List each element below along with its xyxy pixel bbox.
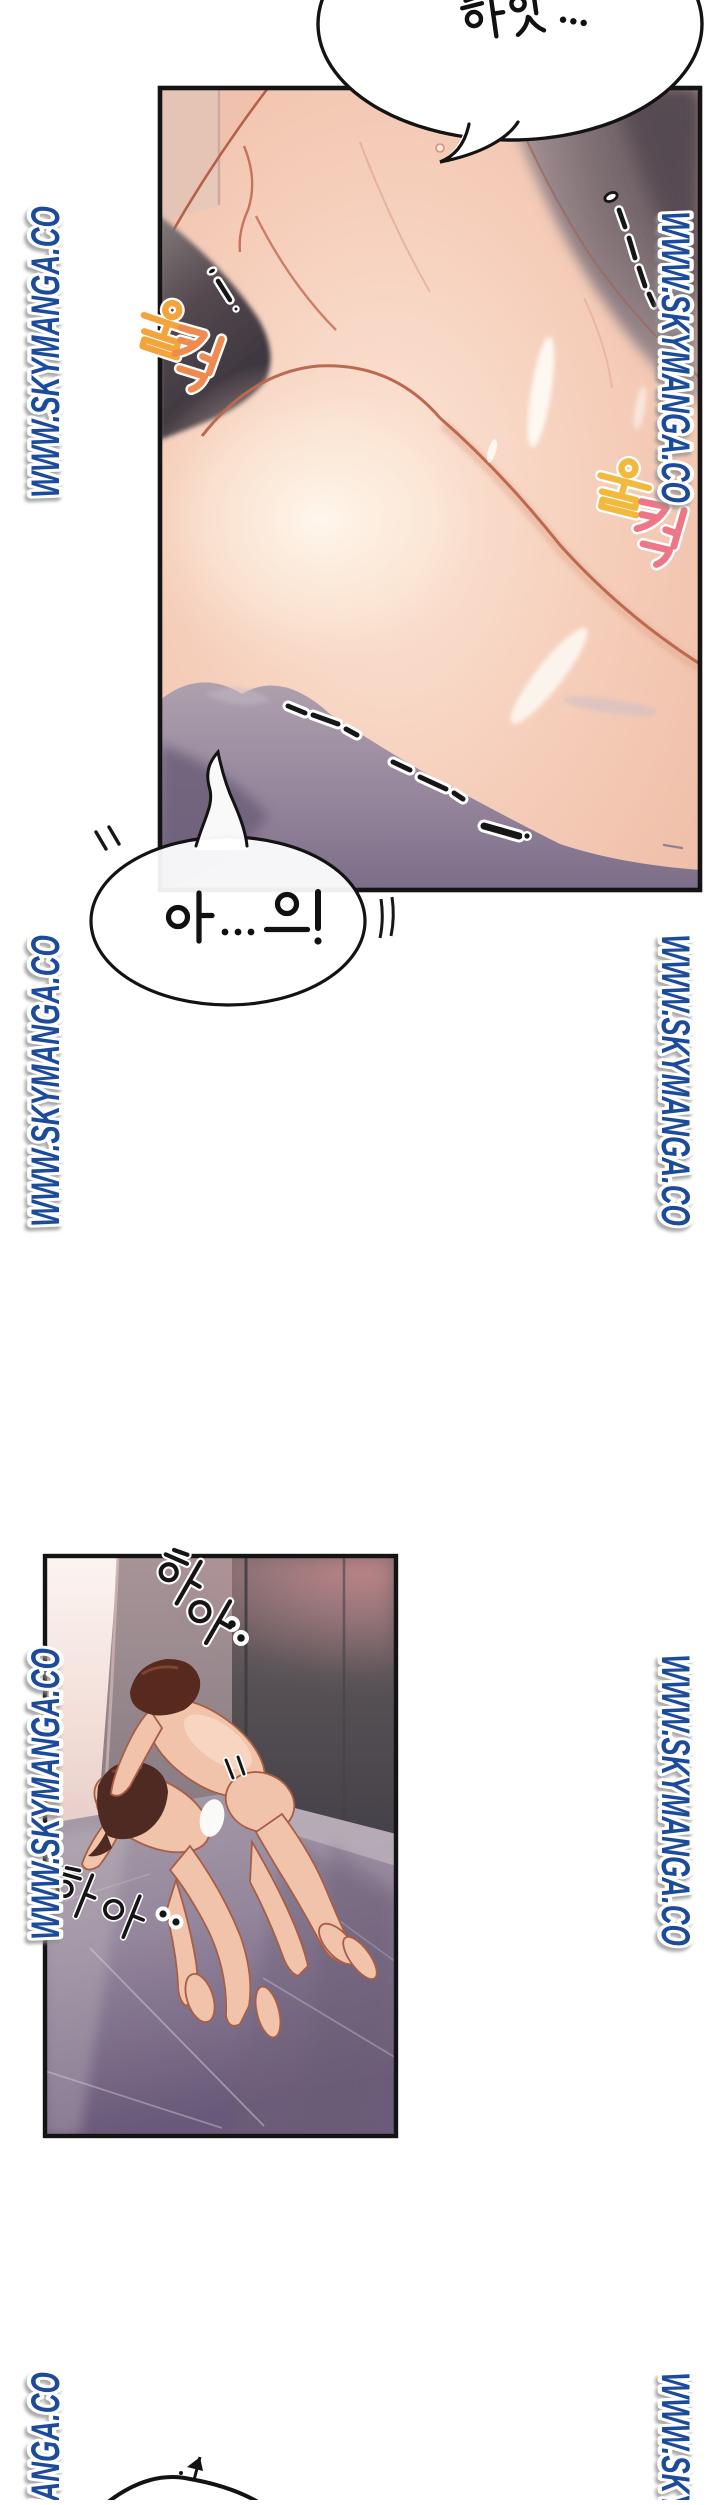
svg-text:WWW.SKYMANGA.CO: WWW.SKYMANGA.CO xyxy=(653,934,697,1226)
svg-text:WWW.SKYMANGA.CO: WWW.SKYMANGA.CO xyxy=(653,1654,697,1946)
svg-text:WWW.SKYMANGA.CO: WWW.SKYMANGA.CO xyxy=(24,2372,68,2500)
svg-text:WWW.SKYMANGA.CO: WWW.SKYMANGA.CO xyxy=(653,2372,697,2500)
svg-text:WWW.SKYMANGA.CO: WWW.SKYMANGA.CO xyxy=(24,206,68,498)
svg-text:WWW.SKYMANGA.CO: WWW.SKYMANGA.CO xyxy=(653,211,697,503)
svg-text:WWW.SKYMANGA.CO: WWW.SKYMANGA.CO xyxy=(24,1648,68,1940)
svg-text:WWW.SKYMANGA.CO: WWW.SKYMANGA.CO xyxy=(24,935,68,1227)
